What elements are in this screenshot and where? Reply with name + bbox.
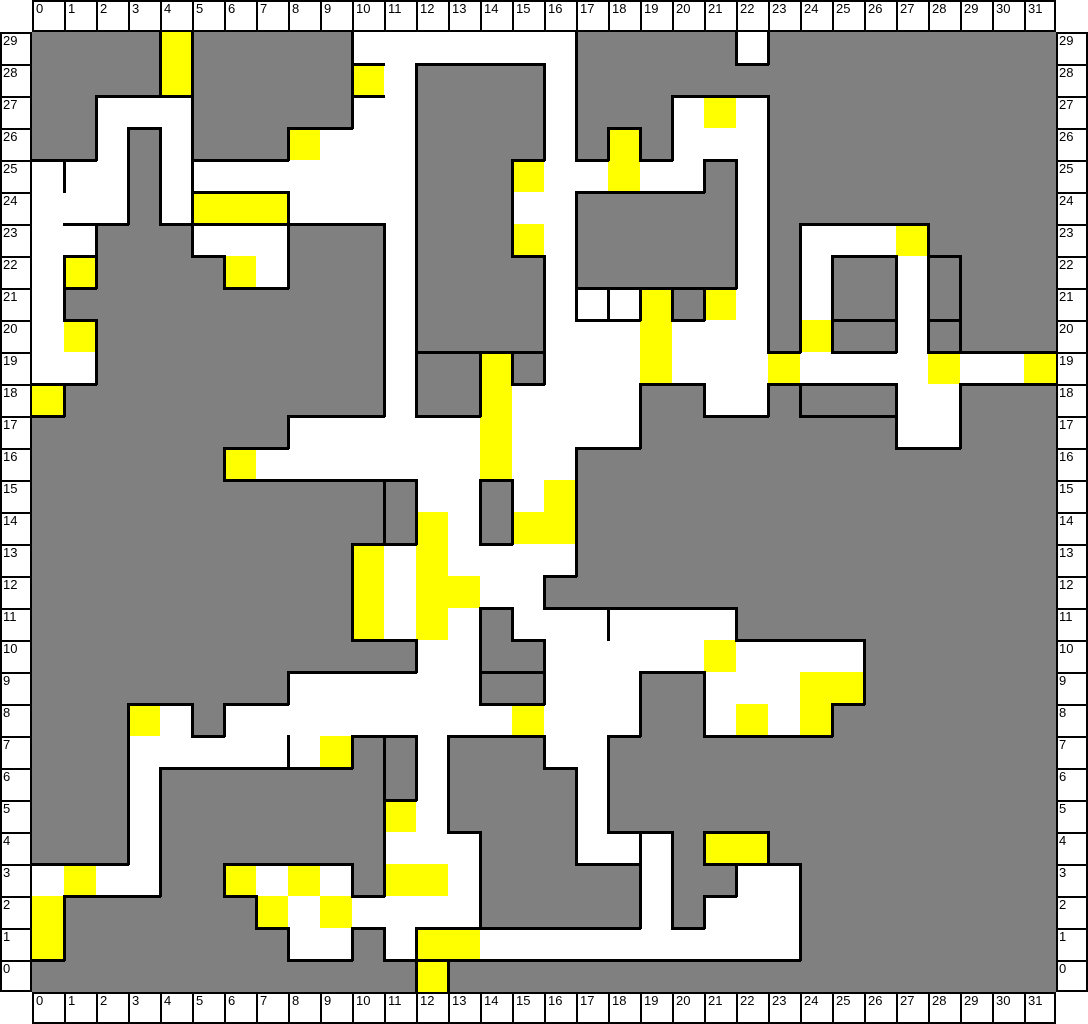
map-cell-floor <box>608 352 640 384</box>
map-cell-floor <box>576 768 608 800</box>
map-wall <box>159 831 162 865</box>
map-wall <box>703 159 737 162</box>
map-cell-floor <box>352 416 384 448</box>
map-wall <box>127 895 161 898</box>
map-wall <box>415 223 418 257</box>
map-wall <box>351 223 385 226</box>
map-cell-floor <box>640 928 672 960</box>
map-cell-marker <box>640 320 672 352</box>
map-cell-marker <box>416 864 448 896</box>
map-wall <box>223 287 257 290</box>
map-wall <box>671 383 705 386</box>
map-cell-floor <box>736 672 768 704</box>
map-cell-floor <box>544 672 576 704</box>
map-wall <box>767 95 770 129</box>
map-wall <box>927 255 961 258</box>
map-wall <box>447 767 450 801</box>
map-wall <box>511 703 545 706</box>
map-wall <box>63 287 66 321</box>
map-cell-marker <box>768 352 800 384</box>
map-cell-floor <box>544 608 576 640</box>
map-wall <box>255 895 258 929</box>
map-cell-floor <box>448 32 480 64</box>
map-wall <box>543 767 577 770</box>
map-cell-floor <box>736 352 768 384</box>
map-cell-marker <box>352 64 384 96</box>
map-cell-floor <box>800 288 832 320</box>
map-wall <box>799 319 802 353</box>
map-wall <box>415 351 418 385</box>
map-wall <box>479 479 482 513</box>
map-cell-marker <box>832 672 864 704</box>
map-wall <box>255 703 289 706</box>
map-wall <box>351 863 354 897</box>
map-cell-floor <box>576 704 608 736</box>
map-cell-floor <box>544 736 576 768</box>
map-cell-floor <box>544 256 576 288</box>
map-cell-floor <box>416 32 448 64</box>
map-cell-floor <box>128 768 160 800</box>
map-wall <box>767 863 801 866</box>
map-wall <box>95 223 129 226</box>
map-cell-marker <box>224 256 256 288</box>
map-wall <box>703 415 737 418</box>
map-wall <box>895 447 929 450</box>
map-cell-floor <box>448 704 480 736</box>
map-cell-floor <box>544 192 576 224</box>
map-wall <box>799 287 802 321</box>
map-wall <box>575 479 578 513</box>
map-cell-floor <box>672 640 704 672</box>
map-wall <box>95 319 98 353</box>
map-wall <box>159 863 162 897</box>
map-cell-marker <box>320 896 352 928</box>
map-cell-floor <box>352 896 384 928</box>
map-wall <box>127 831 130 865</box>
map-wall <box>767 383 801 386</box>
map-cell-marker <box>608 128 640 160</box>
map-wall <box>255 447 289 450</box>
map-wall <box>639 383 642 417</box>
map-cell-marker <box>416 960 448 992</box>
map-wall <box>63 383 97 386</box>
map-wall <box>671 831 674 865</box>
axis-top: 0123456789101112131415161718192021222324… <box>32 0 1056 32</box>
map-wall <box>639 607 673 610</box>
map-wall <box>31 863 65 866</box>
map-cell-floor <box>256 864 288 896</box>
map-cell-floor <box>448 416 480 448</box>
map-wall <box>831 319 834 353</box>
map-wall <box>543 127 546 161</box>
map-cell-floor <box>896 288 928 320</box>
map-wall <box>959 415 962 449</box>
map-wall <box>575 447 609 450</box>
map-wall <box>415 767 418 801</box>
map-wall <box>287 735 290 769</box>
map-cell-floor <box>320 448 352 480</box>
map-wall <box>415 159 418 193</box>
map-cell-floor <box>736 256 768 288</box>
map-cell-floor <box>352 96 384 128</box>
map-cell-marker <box>512 704 544 736</box>
map-wall <box>671 895 674 929</box>
axis-bottom: 0123456789101112131415161718192021222324… <box>32 992 1056 1024</box>
map-wall <box>351 31 354 65</box>
map-cell-floor <box>384 256 416 288</box>
automap-screen: 0123456789101112131415161718192021222324… <box>0 0 1088 1024</box>
map-cell-floor <box>64 160 96 192</box>
map-cell-floor <box>800 224 832 256</box>
map-wall <box>639 383 673 386</box>
map-cell-floor <box>288 160 320 192</box>
map-cell-floor <box>64 352 96 384</box>
map-wall <box>383 287 386 321</box>
map-cell-floor <box>384 160 416 192</box>
map-wall <box>127 735 130 769</box>
map-wall <box>671 95 674 129</box>
map-cell-floor <box>480 704 512 736</box>
map-wall <box>479 735 513 738</box>
map-cell-floor <box>736 32 768 64</box>
map-cell-floor <box>512 544 544 576</box>
map-cell-floor <box>480 928 512 960</box>
map-cell-floor <box>576 640 608 672</box>
map-wall <box>479 511 482 545</box>
map-wall <box>479 543 513 546</box>
map-wall <box>351 735 385 738</box>
map-wall <box>575 831 578 865</box>
map-cell-floor <box>416 640 448 672</box>
map-cell-floor <box>864 352 896 384</box>
map-wall <box>447 959 481 962</box>
map-cell-floor <box>576 416 608 448</box>
map-cell-floor <box>896 384 928 416</box>
map-wall <box>191 191 289 194</box>
map-cell-floor <box>448 448 480 480</box>
map-cell-floor <box>832 640 864 672</box>
map-wall <box>671 863 674 897</box>
map-wall <box>287 863 321 866</box>
map-wall <box>767 351 801 354</box>
map-wall <box>319 223 353 226</box>
map-cell-floor <box>416 896 448 928</box>
map-wall <box>383 319 386 353</box>
map-wall <box>575 287 578 321</box>
map-wall <box>895 415 898 449</box>
map-cell-floor <box>736 96 768 128</box>
map-wall <box>415 511 418 545</box>
map-wall <box>127 191 130 225</box>
map-cell-marker <box>640 288 672 320</box>
map-cell-floor <box>480 576 512 608</box>
map-wall <box>479 927 513 930</box>
map-wall <box>383 671 417 674</box>
map-wall <box>927 255 930 289</box>
map-wall <box>383 735 386 801</box>
map-cell-floor <box>576 928 608 960</box>
map-cell-floor <box>320 704 352 736</box>
map-wall <box>575 159 609 162</box>
map-wall <box>703 607 737 610</box>
map-wall <box>383 799 386 833</box>
map-wall <box>639 959 673 962</box>
map-wall <box>511 63 545 66</box>
map-cell-floor <box>192 736 224 768</box>
map-wall <box>575 191 578 225</box>
map-cell-floor <box>544 96 576 128</box>
map-cell-floor <box>352 160 384 192</box>
map-wall <box>383 863 386 897</box>
map-wall <box>927 319 961 322</box>
map-cell-floor <box>640 640 672 672</box>
map-cell-floor <box>352 448 384 480</box>
map-wall <box>95 255 98 289</box>
map-wall <box>575 223 578 257</box>
map-cell-floor <box>608 672 640 704</box>
map-wall <box>543 255 546 289</box>
map-cell-floor <box>672 96 704 128</box>
map-wall <box>31 383 65 386</box>
map-cell-floor <box>768 928 800 960</box>
map-cell-floor <box>512 192 544 224</box>
map-cell-floor <box>128 864 160 896</box>
map-cell-floor <box>192 160 224 192</box>
map-cell-floor <box>608 928 640 960</box>
map-cell-floor <box>320 160 352 192</box>
map-wall <box>1023 383 1057 386</box>
map-wall <box>671 191 705 194</box>
map-wall <box>63 319 97 322</box>
map-cell-floor <box>416 768 448 800</box>
map-wall <box>351 543 354 577</box>
map-wall <box>383 383 386 417</box>
map-cell-floor <box>384 96 416 128</box>
map-cell-marker <box>256 192 288 224</box>
map-wall <box>671 927 705 930</box>
map-wall <box>671 287 705 290</box>
map-wall <box>95 127 98 161</box>
map-wall <box>575 287 609 290</box>
map-wall <box>927 447 961 450</box>
map-wall <box>735 831 769 834</box>
map-wall <box>767 191 770 225</box>
map-cell-floor <box>512 32 544 64</box>
map-wall <box>767 255 770 289</box>
map-wall <box>191 703 194 737</box>
map-cell-floor <box>32 160 64 192</box>
map-wall <box>223 255 226 289</box>
map-cell-marker <box>512 160 544 192</box>
map-wall <box>191 63 194 97</box>
map-cell-floor <box>96 160 128 192</box>
map-cell-floor <box>384 704 416 736</box>
map-wall <box>703 895 706 929</box>
map-cell-floor <box>576 736 608 768</box>
map-cell-floor <box>672 352 704 384</box>
map-cell-floor <box>352 672 384 704</box>
map-cell-floor <box>640 608 672 640</box>
map-wall <box>351 95 385 98</box>
map-wall <box>191 159 225 162</box>
map-wall <box>639 831 642 865</box>
map-wall <box>447 799 450 833</box>
map-wall <box>639 127 642 161</box>
map-wall <box>255 287 289 290</box>
map-wall <box>575 191 609 194</box>
map-wall <box>31 415 65 418</box>
map-wall <box>607 927 641 930</box>
map-cell-floor <box>288 192 320 224</box>
map-wall <box>351 543 385 546</box>
map-wall <box>127 159 130 193</box>
map-wall <box>927 319 930 353</box>
map-wall <box>927 223 930 257</box>
map-wall <box>767 31 770 65</box>
map-cell-floor <box>928 416 960 448</box>
map-wall <box>383 959 417 962</box>
map-wall <box>415 95 418 129</box>
map-cell-floor <box>576 160 608 192</box>
map-cell-floor <box>512 608 544 640</box>
map-wall <box>287 191 290 225</box>
map-wall <box>543 319 546 353</box>
map-wall <box>607 863 641 866</box>
map-cell-floor <box>704 320 736 352</box>
map-wall <box>223 895 257 898</box>
map-wall <box>767 959 801 962</box>
map-wall <box>479 671 482 705</box>
map-wall <box>63 159 66 193</box>
map-wall <box>575 95 578 129</box>
map-wall <box>767 127 770 161</box>
map-cell-marker <box>736 832 768 864</box>
map-wall <box>607 191 641 194</box>
map-wall <box>159 703 193 706</box>
map-wall <box>639 863 642 897</box>
map-wall <box>767 223 770 257</box>
map-cell-floor <box>736 896 768 928</box>
map-wall <box>415 927 418 961</box>
map-cell-floor <box>768 672 800 704</box>
map-wall <box>351 735 354 769</box>
map-cell-marker <box>352 544 384 576</box>
map-cell-marker <box>160 32 192 64</box>
map-wall <box>543 671 546 705</box>
map-wall <box>895 319 898 353</box>
map-wall <box>383 479 386 545</box>
axis-border <box>32 992 1056 1024</box>
map-wall <box>415 415 449 418</box>
map-wall <box>799 415 897 418</box>
map-cell-marker <box>64 256 96 288</box>
map-wall <box>127 127 130 161</box>
map-wall <box>447 735 481 738</box>
map-wall <box>383 927 386 961</box>
map-cell-floor <box>288 416 320 448</box>
map-wall <box>63 895 66 929</box>
map-wall <box>703 671 706 705</box>
map-wall <box>959 255 962 321</box>
map-cell-floor <box>128 736 160 768</box>
map-wall <box>319 415 353 418</box>
map-cell-floor <box>160 128 192 160</box>
map-wall <box>831 383 865 386</box>
map-wall <box>511 223 514 257</box>
map-wall <box>479 703 513 706</box>
map-wall <box>639 895 642 929</box>
map-wall <box>511 351 514 385</box>
map-wall <box>767 319 770 353</box>
map-cell-floor <box>480 544 512 576</box>
map-wall <box>895 287 898 321</box>
map-cell-floor <box>576 832 608 864</box>
map-cell-floor <box>288 448 320 480</box>
map-cell-floor <box>736 384 768 416</box>
map-cell-floor <box>736 128 768 160</box>
map-wall <box>511 607 514 641</box>
map-cell-floor <box>384 352 416 384</box>
map-cell-floor <box>608 384 640 416</box>
map-wall <box>351 415 385 418</box>
map-cell-floor <box>96 96 128 128</box>
map-cell-floor <box>704 896 736 928</box>
map-cell-floor <box>288 928 320 960</box>
map-wall <box>415 639 418 673</box>
map-cell-floor <box>832 352 864 384</box>
map-wall <box>319 127 353 130</box>
map-wall <box>223 159 257 162</box>
map-cell-floor <box>512 928 544 960</box>
map-cell-floor <box>768 640 800 672</box>
map-cell-floor <box>608 640 640 672</box>
map-wall <box>767 287 770 321</box>
map-cell-floor <box>32 320 64 352</box>
map-wall <box>191 735 225 738</box>
map-cell-floor <box>384 320 416 352</box>
map-wall <box>351 671 385 674</box>
map-wall <box>799 895 802 929</box>
map-cell-floor <box>544 384 576 416</box>
map-wall <box>895 255 898 289</box>
map-wall <box>351 607 354 641</box>
map-cell-marker <box>800 320 832 352</box>
map-wall <box>959 383 962 417</box>
map-cell-floor <box>544 320 576 352</box>
map-cell-floor <box>736 160 768 192</box>
map-cell-marker <box>480 352 512 384</box>
map-cell-floor <box>544 288 576 320</box>
map-wall <box>735 863 738 897</box>
map-wall <box>735 95 769 98</box>
map-cell-floor <box>672 608 704 640</box>
map-cell-floor <box>704 608 736 640</box>
map-wall <box>159 159 162 193</box>
map-wall <box>735 191 738 225</box>
map-cell-floor <box>384 128 416 160</box>
map-wall <box>63 895 97 898</box>
map-wall <box>287 127 290 161</box>
map-cell-floor <box>608 288 640 320</box>
map-wall <box>287 415 321 418</box>
map-cell-floor <box>704 384 736 416</box>
map-wall <box>95 95 98 129</box>
map-cell-marker <box>128 704 160 736</box>
map-wall <box>735 415 769 418</box>
map-wall <box>511 735 545 738</box>
map-cell-floor <box>928 384 960 416</box>
map-cell-floor <box>160 96 192 128</box>
